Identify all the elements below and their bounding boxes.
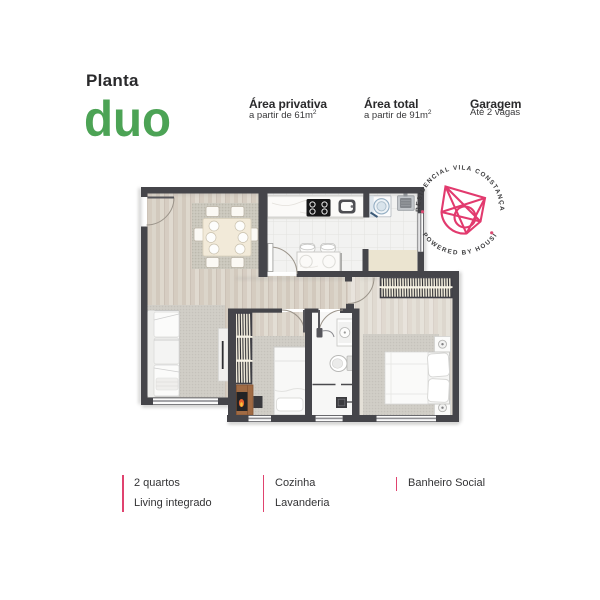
svg-text:RESIDENCIAL VILA CONSTANÇA: RESIDENCIAL VILA CONSTANÇA bbox=[415, 164, 505, 211]
svg-text:POWERED BY HOUSI: POWERED BY HOUSI bbox=[421, 231, 499, 256]
